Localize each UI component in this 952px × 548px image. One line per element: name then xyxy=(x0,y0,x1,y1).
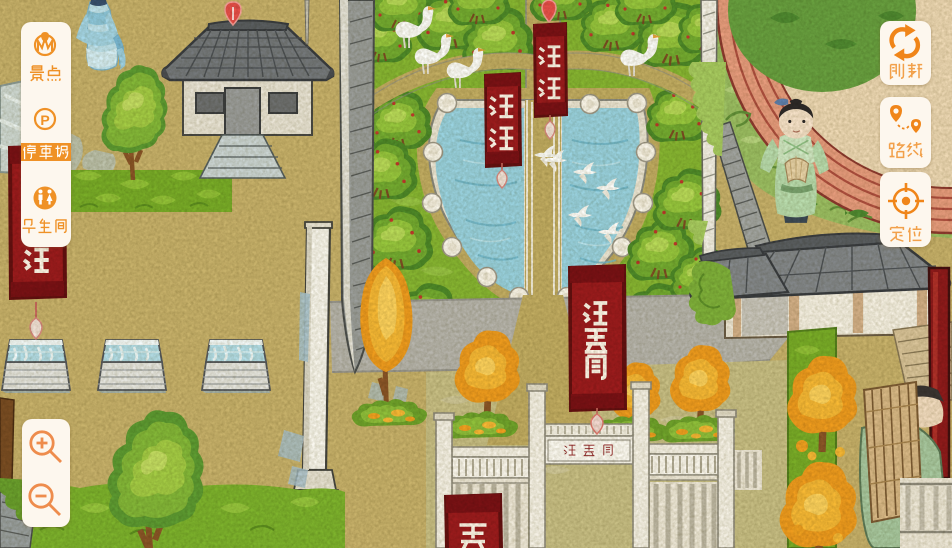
svg-text:P: P xyxy=(40,112,49,128)
